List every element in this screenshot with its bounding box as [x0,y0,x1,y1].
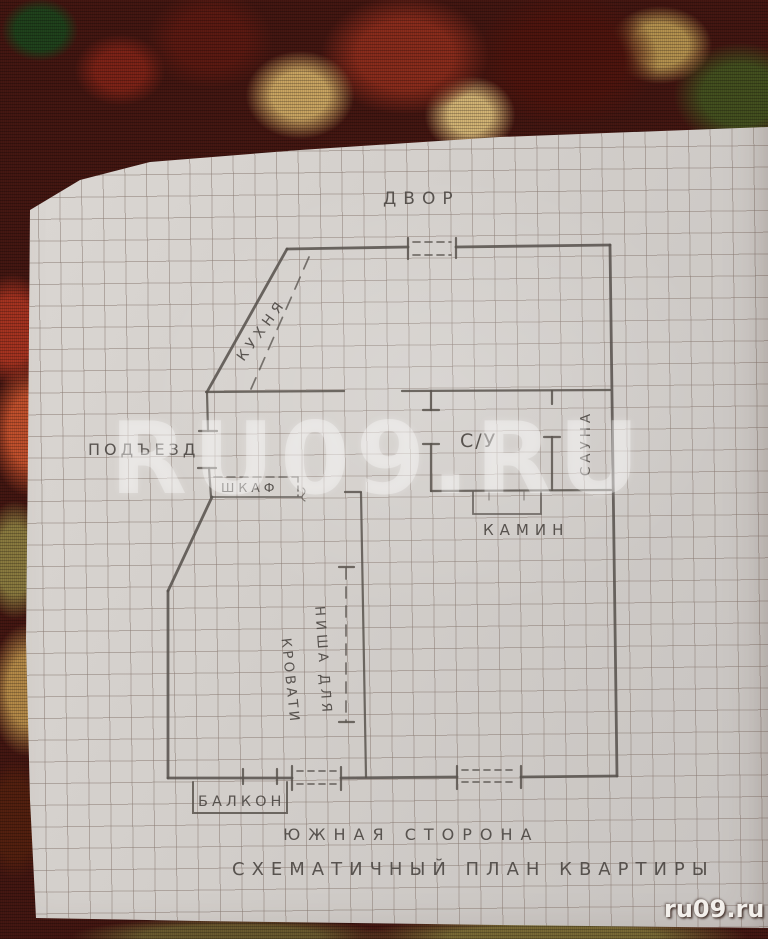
label-plan-title: СХЕМАТИЧНЫЙ ПЛАН КВАРТИРЫ [232,859,715,880]
label-balcony: БАЛКОН [198,794,285,810]
watermark-corner: ru09.ru [664,895,764,923]
photo-of-floor-plan: ДВОР КУХНЯ ПОДЪЕЗД ШКАФ С/У САУНА КАМИН … [0,0,768,939]
label-fireplace: КАМИН [483,521,569,539]
watermark-center: RU09.RU [110,400,646,517]
label-south-side: ЮЖНАЯ СТОРОНА [283,825,539,844]
label-yard: ДВОР [383,189,460,209]
